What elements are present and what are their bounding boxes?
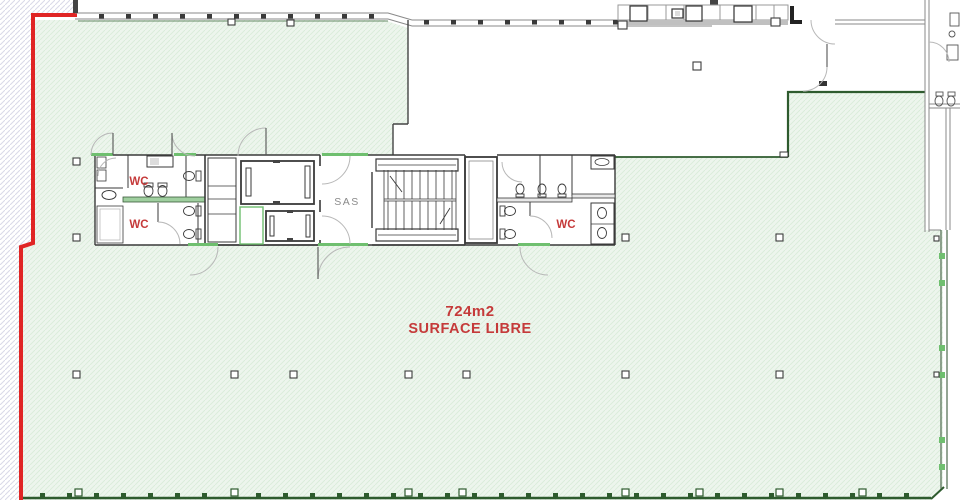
column: [73, 371, 80, 378]
floor-plan: WC WC SAS: [0, 0, 960, 500]
column: [618, 21, 627, 29]
column: [776, 489, 783, 496]
column: [693, 62, 701, 70]
column: [622, 371, 629, 378]
column: [776, 371, 783, 378]
appliance: [630, 6, 647, 21]
wall-corner: [790, 6, 802, 24]
wc-left-lower-label: WC: [129, 219, 148, 231]
column: [405, 489, 412, 496]
wall-stub: [73, 0, 78, 13]
wall-step: [780, 152, 788, 157]
column: [228, 19, 235, 25]
column: [73, 158, 80, 165]
column: [459, 489, 466, 496]
appliance: [686, 6, 702, 21]
column: [231, 489, 238, 496]
column: [934, 372, 939, 377]
sas-label: SAS: [334, 196, 360, 208]
column: [622, 489, 629, 496]
column: [405, 371, 412, 378]
column: [287, 20, 294, 26]
column: [290, 371, 297, 378]
column: [231, 371, 238, 378]
column: [696, 489, 703, 496]
upper-right-room: [819, 20, 925, 86]
column: [75, 489, 82, 496]
area-value: 724m2: [445, 303, 494, 320]
column: [463, 371, 470, 378]
right-wing: [925, 0, 960, 232]
column: [622, 234, 629, 241]
floor-plan-page: WC WC SAS: [0, 0, 960, 500]
column: [73, 234, 80, 241]
wc-right-label: WC: [556, 219, 575, 231]
appliance: [734, 6, 752, 22]
column: [859, 489, 866, 496]
column: [934, 236, 939, 241]
wc-left-upper-label: WC: [129, 176, 148, 188]
column: [776, 234, 783, 241]
column: [771, 18, 780, 26]
sas-lobby: SAS: [334, 196, 360, 208]
service-core: WC WC SAS: [95, 155, 615, 245]
area-caption: SURFACE LIBRE: [408, 321, 531, 337]
